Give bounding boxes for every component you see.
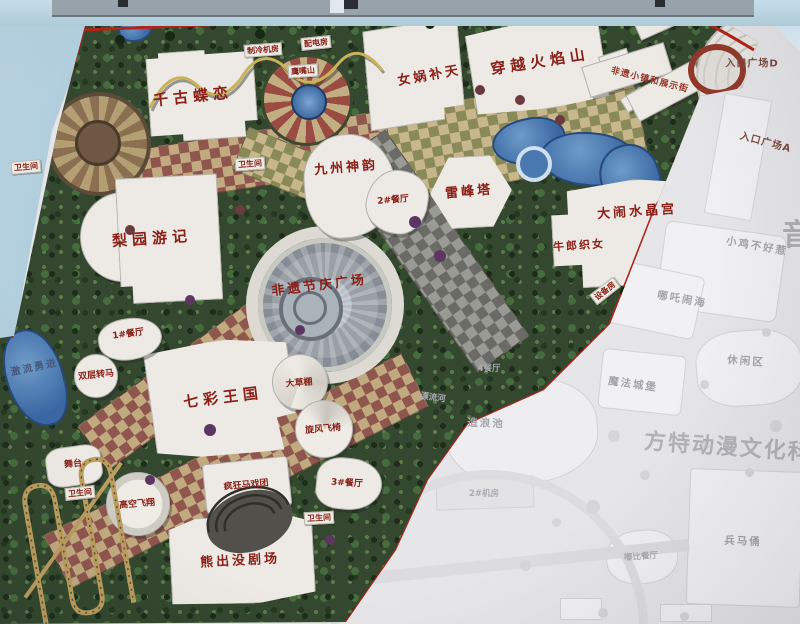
facility-label: 制冷机房 [244, 42, 283, 58]
board-top-rail [52, 0, 754, 17]
faded-area-label: 魔法城堡 [607, 373, 659, 395]
attraction-label: 牛郎织女 [553, 235, 606, 255]
faded-area-label: 嘟比餐厅 [624, 549, 659, 563]
facility-label: 疯狂马戏团 [223, 476, 269, 493]
board-clip [655, 0, 665, 7]
attraction-label: 千古蝶恋 [152, 81, 234, 110]
attraction-label: 九州神韵 [313, 154, 378, 179]
facility-label: 卫生间 [64, 485, 95, 501]
facility-label: 大草棚 [285, 374, 313, 389]
faded-area-label: 休闲区 [727, 352, 765, 370]
board-clip [342, 0, 358, 9]
facility-label: 2#餐厅 [377, 191, 410, 207]
attraction-label: 熊出没剧场 [200, 547, 281, 570]
street-label: 非遗小镇和展示街 [610, 63, 691, 95]
attraction-label: 女娲补天 [396, 59, 462, 89]
facility-label: 舞台 [63, 456, 82, 471]
attraction-label: 激流勇进 [9, 354, 59, 379]
facility-label: 1#餐厅 [111, 324, 144, 341]
facility-label: 高空飞翔 [118, 495, 155, 511]
facility-label: 3#餐厅 [331, 475, 363, 490]
faded-area-label: 造浪池 [467, 415, 505, 431]
faded-area-label: 4餐厅 [478, 362, 501, 374]
park-map-photo: 方特动漫文化科技 音 [0, 0, 800, 624]
faded-area-label: 小鸡不好惹 [725, 233, 789, 259]
facility-label: 设备房 [589, 277, 621, 306]
facility-label: 配电房 [300, 35, 331, 51]
map-labels-layer: 千古蝶恋女娲补天穿越火焰山九州神韵雷峰塔大闹水晶宫牛郎织女梨园游记非遗节庆广场七… [0, 0, 800, 624]
faded-area-label: 哪吒闹海 [656, 287, 708, 310]
facility-label: 卫生间 [10, 159, 41, 175]
facility-label: 双层转马 [77, 366, 114, 383]
board-rail-gap [330, 0, 344, 13]
attraction-label: 大闹水晶宫 [596, 198, 677, 223]
facility-label: 卫生间 [304, 511, 335, 526]
entrance-label: 入口广场A [739, 127, 794, 155]
attraction-label: 梨园游记 [111, 225, 192, 252]
attraction-label: 雷峰塔 [444, 178, 493, 201]
attraction-label: 穿越火焰山 [489, 43, 591, 79]
facility-label: 旋风飞椅 [304, 420, 341, 436]
entrance-label: 入口广场D [725, 55, 778, 70]
board-clip [118, 0, 128, 7]
facility-label: 卫生间 [235, 156, 266, 171]
facility-label: 鹰嘴山 [288, 63, 319, 78]
faded-area-label: 兵马俑 [724, 533, 762, 549]
faded-area-label: 漂流河 [420, 389, 447, 404]
attraction-label: 七彩王国 [182, 382, 264, 413]
attraction-label: 非遗节庆广场 [270, 269, 368, 300]
faded-area-label: 2#机房 [469, 487, 499, 499]
